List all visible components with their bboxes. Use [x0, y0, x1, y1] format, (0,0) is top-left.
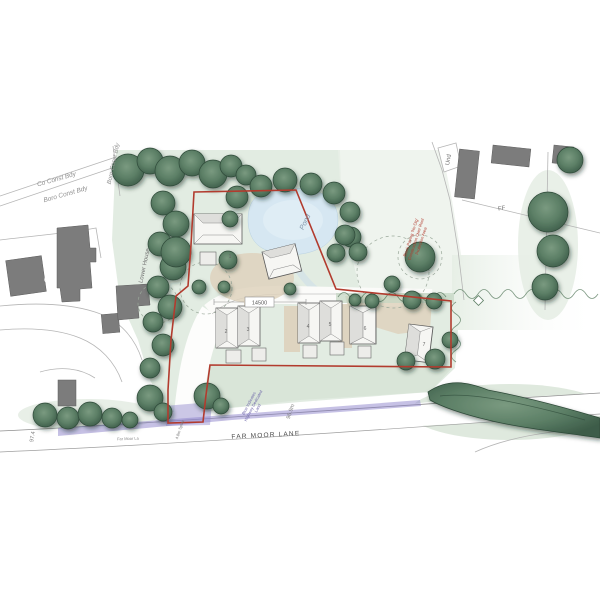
plot-number-4: 4: [307, 324, 310, 330]
ff-label: FF: [498, 205, 507, 212]
existing-building: [6, 256, 47, 297]
proposed-house-plot-3: [238, 306, 260, 346]
garage: [330, 342, 344, 355]
existing-building: [58, 380, 76, 406]
tree-canopy: [163, 211, 189, 237]
existing-building: [491, 145, 531, 167]
tree-canopy: [140, 358, 160, 378]
proposed-house-plot-4: [298, 303, 320, 343]
tree-canopy: [158, 295, 182, 319]
tree-canopy: [300, 173, 322, 195]
garage: [358, 346, 371, 358]
tree-canopy: [222, 211, 238, 227]
tree-canopy: [102, 408, 122, 428]
tree-canopy: [323, 182, 345, 204]
tree-canopy: [122, 412, 138, 428]
proposed-house-plot-6: [350, 306, 376, 344]
tree-canopy: [426, 293, 442, 309]
tree-canopy: [192, 280, 206, 294]
tree-canopy: [213, 398, 229, 414]
tree-canopy: [425, 349, 445, 369]
tree-canopy: [151, 191, 175, 215]
tree-canopy: [365, 294, 379, 308]
tree-canopy: [33, 403, 57, 427]
road-curve: [0, 329, 122, 382]
tree-canopy: [403, 291, 421, 309]
existing-building: [57, 225, 96, 302]
tree-canopy: [147, 276, 169, 298]
tree-canopy: [537, 235, 569, 267]
tree-canopy: [335, 225, 355, 245]
site-plan-canvas: 14500 Co Const Bdy Boro Const Bdy Boro C…: [0, 0, 600, 600]
tree-canopy: [340, 202, 360, 222]
existing-house-number: 6: [44, 277, 48, 284]
existing-building: [101, 313, 120, 333]
tree-canopy: [218, 281, 230, 293]
tree-canopy: [349, 243, 367, 261]
tree-canopy: [143, 312, 163, 332]
garage: [252, 348, 266, 361]
proposed-house-plot-2: [216, 308, 238, 348]
road-curve: [40, 369, 95, 378]
tree-canopy: [273, 168, 297, 192]
far-moor-la-small-label: Far Moor La: [117, 436, 140, 442]
tree-canopy: [532, 274, 558, 300]
tree-canopy: [327, 244, 345, 262]
garage: [226, 350, 241, 363]
wash-top-right: [338, 150, 462, 295]
plot-number-3: 3: [247, 327, 250, 333]
tree-canopy: [250, 175, 272, 197]
tree-canopy: [384, 276, 400, 292]
proposed-house-plot-5: [320, 301, 342, 341]
plot-number-1: 1: [229, 254, 232, 260]
co-const-bdy-label: Co Const Bdy: [36, 170, 77, 188]
garage: [200, 252, 216, 265]
garage: [303, 345, 317, 358]
tree-canopy: [226, 186, 248, 208]
tree-canopy: [557, 147, 583, 173]
tree-canopy: [154, 403, 172, 421]
site-plan-drawing: 14500 Co Const Bdy Boro Const Bdy Boro C…: [0, 0, 600, 600]
dimension-value: 14500: [252, 301, 267, 307]
plot-number-5: 5: [329, 322, 332, 328]
boro-const-bdy-label: Boro Const Bdy: [43, 185, 89, 204]
plot-number-6: 6: [364, 326, 367, 332]
tree-canopy: [528, 192, 568, 232]
tree-canopy: [78, 402, 102, 426]
tree-canopy: [349, 294, 361, 306]
tree-canopy: [161, 237, 191, 267]
tree-canopy: [442, 332, 458, 348]
plot-number-7: 7: [423, 342, 426, 348]
tree-canopy: [284, 283, 296, 295]
plot-number-2: 2: [225, 329, 228, 335]
tree-canopy: [57, 407, 79, 429]
